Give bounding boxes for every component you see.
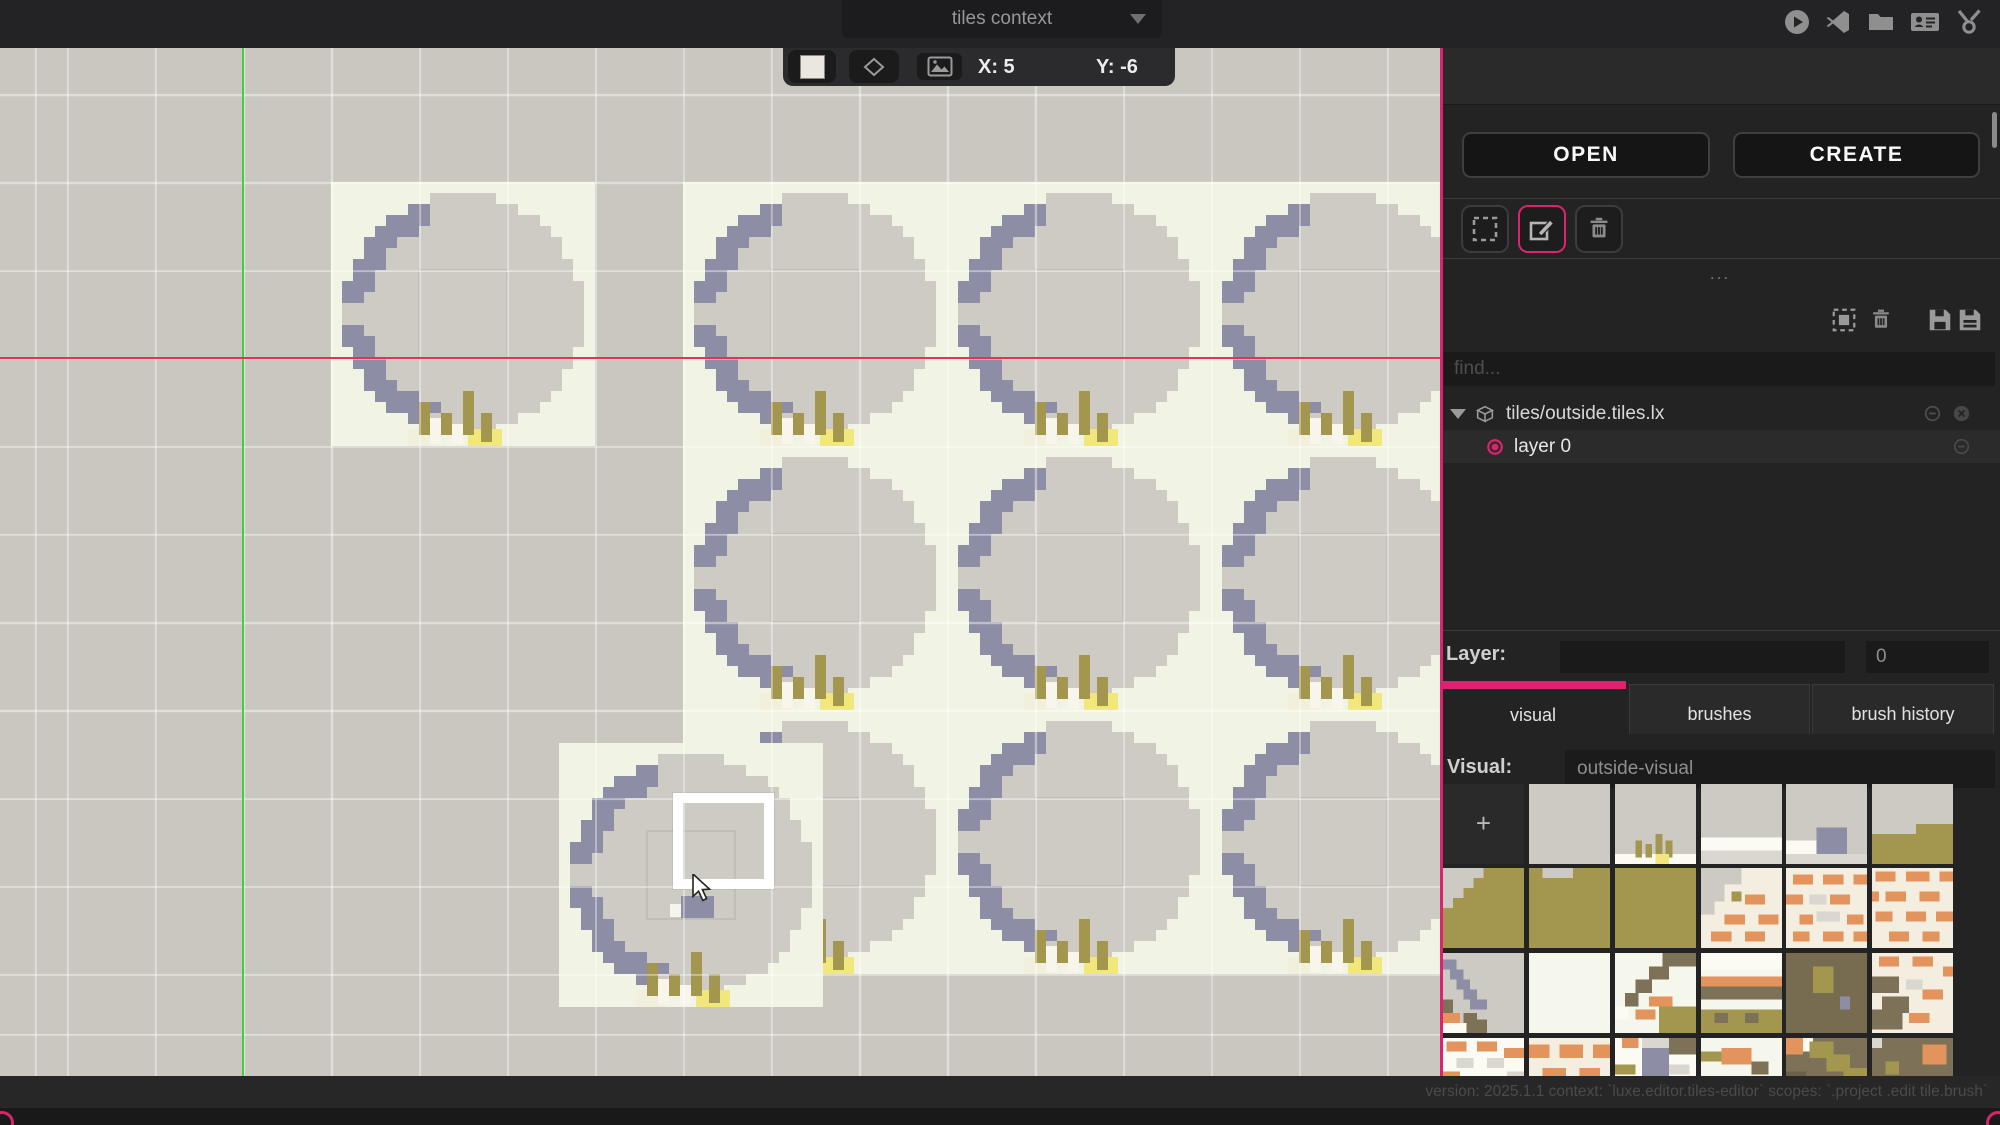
- palette-tile[interactable]: [1872, 868, 1953, 948]
- palette-tile-preview: [1786, 784, 1867, 864]
- shape-mode-button[interactable]: [849, 50, 899, 83]
- tile-swatch: [800, 55, 825, 79]
- top-bar: tiles context: [0, 0, 2000, 48]
- palette-tile[interactable]: [1615, 784, 1696, 864]
- vscode-icon[interactable]: [1824, 7, 1854, 37]
- palette-tile-preview: [1615, 868, 1696, 948]
- palette-tile[interactable]: [1529, 1038, 1610, 1076]
- palette-tile-preview: [1786, 953, 1867, 1033]
- contacts-icon[interactable]: [1908, 7, 1942, 37]
- palette-tile-preview: [1872, 1038, 1953, 1076]
- palette-tile-preview: [1701, 1038, 1782, 1076]
- folder-icon[interactable]: [1866, 7, 1896, 37]
- palette-tile[interactable]: [1443, 868, 1524, 948]
- palette-tile-preview: [1786, 1038, 1867, 1076]
- palette-tile[interactable]: [1786, 953, 1867, 1033]
- palette-tile-preview: [1786, 868, 1867, 948]
- tile-palette: +: [1440, 48, 2000, 1076]
- current-tile-button[interactable]: [788, 50, 836, 83]
- palette-tile-preview: [1872, 868, 1953, 948]
- image-icon: [927, 56, 953, 77]
- palette-tile[interactable]: [1615, 1038, 1696, 1076]
- play-icon[interactable]: [1782, 7, 1812, 37]
- palette-tile[interactable]: [1872, 784, 1953, 864]
- palette-tile[interactable]: [1529, 953, 1610, 1033]
- placed-tiles: [0, 48, 1440, 1076]
- palette-tile[interactable]: [1872, 953, 1953, 1033]
- palette-tile-preview: [1701, 784, 1782, 864]
- image-mode-button[interactable]: [917, 53, 962, 80]
- origin-axis-vertical: [242, 48, 244, 1076]
- status-bar: version: 2025.1.1 context: `luxe.editor.…: [0, 1076, 2000, 1108]
- topbar-icon-group: [1782, 7, 1984, 37]
- palette-tile[interactable]: [1786, 784, 1867, 864]
- context-dropdown[interactable]: tiles context: [842, 0, 1162, 38]
- palette-tile-preview: [1615, 784, 1696, 864]
- palette-tile-preview: [1529, 784, 1610, 864]
- status-text: version: 2025.1.1 context: `luxe.editor.…: [1425, 1076, 1988, 1108]
- palette-tile-preview: [1615, 953, 1696, 1033]
- palette-tile-preview: [1701, 868, 1782, 948]
- palette-tile-preview: [1529, 868, 1610, 948]
- palette-tile-preview: [1529, 953, 1610, 1033]
- palette-tile[interactable]: [1701, 953, 1782, 1033]
- context-dropdown-label: tiles context: [952, 8, 1052, 30]
- palette-tile[interactable]: [1701, 868, 1782, 948]
- origin-axis-horizontal: [0, 357, 1440, 359]
- brush-cursor: [673, 793, 774, 889]
- cursor-y-coordinate: Y: -6: [1096, 48, 1138, 86]
- palette-tile[interactable]: [1443, 1038, 1524, 1076]
- palette-tile-preview: [1872, 784, 1953, 864]
- palette-tile[interactable]: [1529, 868, 1610, 948]
- palette-tile-preview: [1443, 868, 1524, 948]
- tile-canvas[interactable]: X: 5 Y: -6: [0, 48, 1440, 1076]
- palette-tile-preview: [1443, 1038, 1524, 1076]
- palette-tile[interactable]: [1872, 1038, 1953, 1076]
- bottom-strip: [0, 1108, 2000, 1125]
- palette-tile[interactable]: [1443, 953, 1524, 1033]
- palette-tile[interactable]: [1529, 784, 1610, 864]
- palette-tile[interactable]: [1786, 1038, 1867, 1076]
- sidebar-accent-edge: [1440, 48, 1443, 1076]
- mouse-cursor: [691, 874, 715, 902]
- sidebar: OPEN CREATE ...: [1440, 48, 2000, 1076]
- palette-tile-preview: [1615, 1038, 1696, 1076]
- cursor-x-coordinate: X: 5: [978, 48, 1015, 86]
- tools-icon[interactable]: [1954, 7, 1984, 37]
- palette-tile[interactable]: [1701, 1038, 1782, 1076]
- chevron-down-icon: [1130, 14, 1146, 24]
- add-tile-button[interactable]: +: [1443, 784, 1524, 864]
- palette-tile[interactable]: [1786, 868, 1867, 948]
- palette-tile-preview: [1701, 953, 1782, 1033]
- canvas-toolbar: X: 5 Y: -6: [783, 48, 1175, 86]
- palette-tile-preview: [1529, 1038, 1610, 1076]
- palette-tile-preview: [1443, 953, 1524, 1033]
- diamond-icon: [862, 56, 886, 78]
- palette-tile[interactable]: [1701, 784, 1782, 864]
- palette-tile-preview: [1872, 953, 1953, 1033]
- palette-tile[interactable]: [1615, 868, 1696, 948]
- palette-tile[interactable]: [1615, 953, 1696, 1033]
